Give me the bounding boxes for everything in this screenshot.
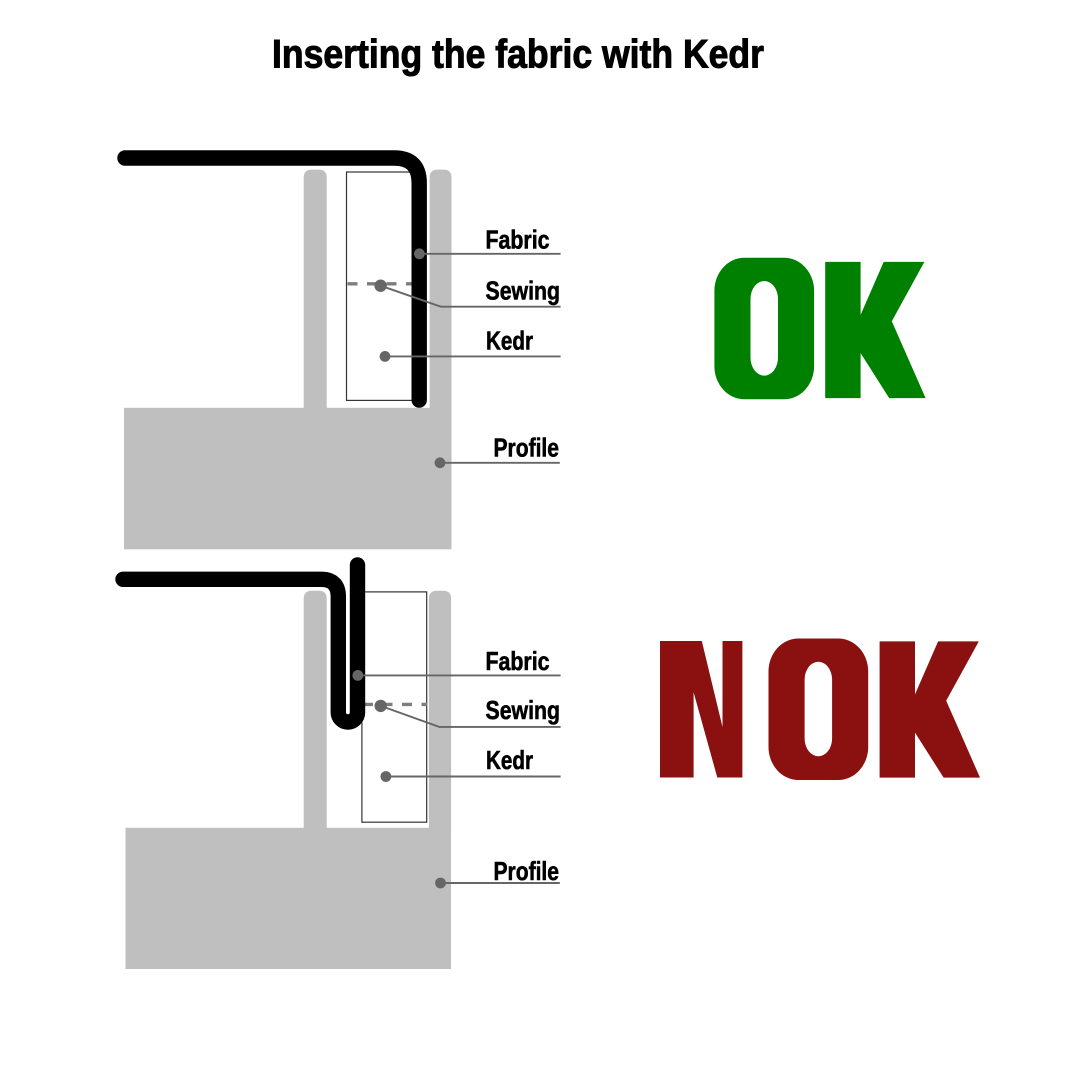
svg-text:Profile: Profile (494, 856, 560, 886)
svg-text:Fabric: Fabric (486, 224, 550, 254)
svg-text:Profile: Profile (494, 433, 560, 463)
svg-text:Kedr: Kedr (486, 745, 533, 775)
svg-text:Kedr: Kedr (486, 326, 533, 356)
svg-text:Fabric: Fabric (486, 646, 550, 676)
svg-text:Inserting the fabric with Kedr: Inserting the fabric with Kedr (272, 33, 764, 77)
svg-text:Sewing: Sewing (486, 695, 561, 725)
svg-text:Sewing: Sewing (486, 276, 561, 306)
